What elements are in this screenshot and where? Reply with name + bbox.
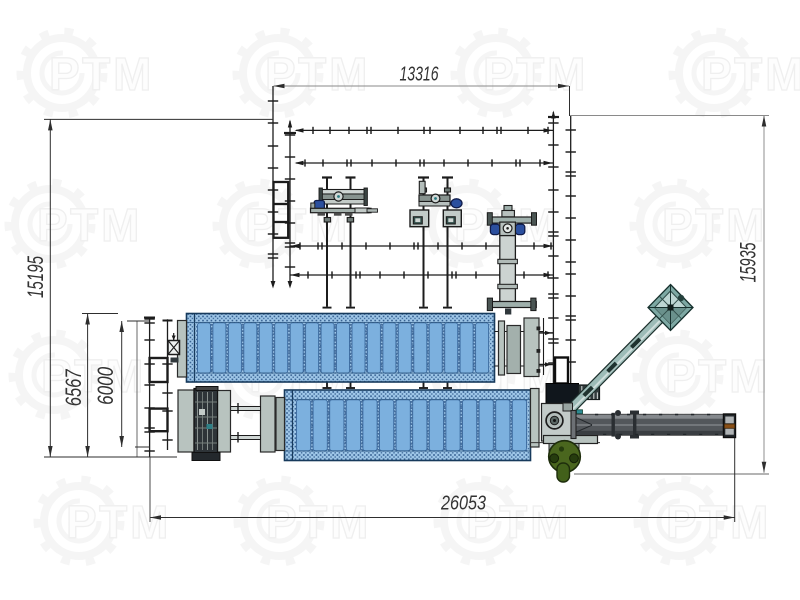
svg-text:6000: 6000	[93, 366, 118, 405]
svg-text:6567: 6567	[61, 369, 86, 407]
svg-text:26053: 26053	[440, 493, 486, 515]
svg-text:15195: 15195	[23, 255, 48, 298]
svg-text:15935: 15935	[735, 242, 760, 282]
svg-text:13316: 13316	[400, 64, 440, 86]
